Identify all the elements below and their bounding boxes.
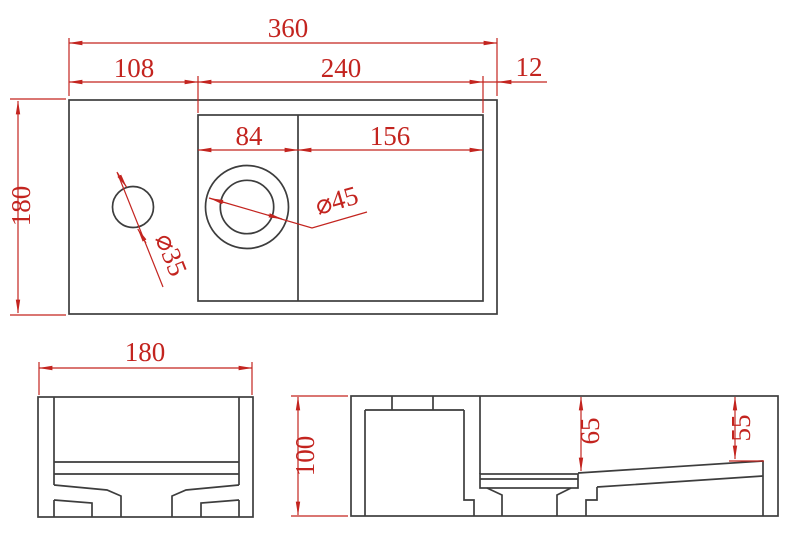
technical-drawing: 360 108 240 12 84 156 180 ⌀35 ⌀45 180 10… xyxy=(0,0,800,555)
side-drain-flange xyxy=(480,474,578,488)
side-drain-pipe-lines xyxy=(487,488,571,516)
dim-label-bowl-right: 156 xyxy=(370,121,411,151)
dim-arrow-faucet-bottom xyxy=(138,229,146,243)
dim-label-front-width: 180 xyxy=(125,337,166,367)
dim-label-segment-left: 108 xyxy=(114,53,155,83)
top-view: 360 108 240 12 84 156 180 ⌀35 ⌀45 xyxy=(6,13,547,315)
drawing-page: 360 108 240 12 84 156 180 ⌀35 ⌀45 180 10… xyxy=(0,0,800,555)
side-bowl-floor-lines xyxy=(578,461,763,516)
dim-label-overall-width: 360 xyxy=(268,13,309,43)
front-basin-lines xyxy=(54,397,239,485)
dim-label-segment-right: 12 xyxy=(516,52,543,82)
dim-label-side-height: 100 xyxy=(290,436,320,477)
dim-label-bowl-depth-left: 65 xyxy=(575,418,605,445)
dim-label-bowl-left: 84 xyxy=(236,121,264,151)
front-feet-lines xyxy=(54,500,239,517)
dim-label-overall-depth: 180 xyxy=(6,186,36,227)
side-view: 100 65 55 xyxy=(290,396,778,516)
side-outline-rect xyxy=(351,396,778,516)
top-faucet-hole-circle xyxy=(113,187,154,228)
front-view: 180 xyxy=(38,337,253,517)
top-outline-rect xyxy=(69,100,497,314)
side-chamber-lines xyxy=(365,410,474,516)
dim-label-drain-dia: ⌀45 xyxy=(312,180,362,221)
front-drain-funnel-lines xyxy=(54,485,239,517)
dim-label-segment-middle: 240 xyxy=(321,53,362,83)
dim-line-faucet-dia xyxy=(117,172,163,287)
top-drain-inner-circle xyxy=(220,180,273,233)
side-underside-lines xyxy=(586,476,763,516)
top-extension-lines xyxy=(10,38,497,315)
top-drain-outer-circle xyxy=(206,166,289,249)
dim-label-bowl-depth-right: 55 xyxy=(726,415,756,442)
dim-label-faucet-dia: ⌀35 xyxy=(149,229,193,280)
dim-arrow-drain-right xyxy=(268,215,282,219)
front-outline-rect xyxy=(38,397,253,517)
side-faucet-hole-lines xyxy=(365,396,464,410)
